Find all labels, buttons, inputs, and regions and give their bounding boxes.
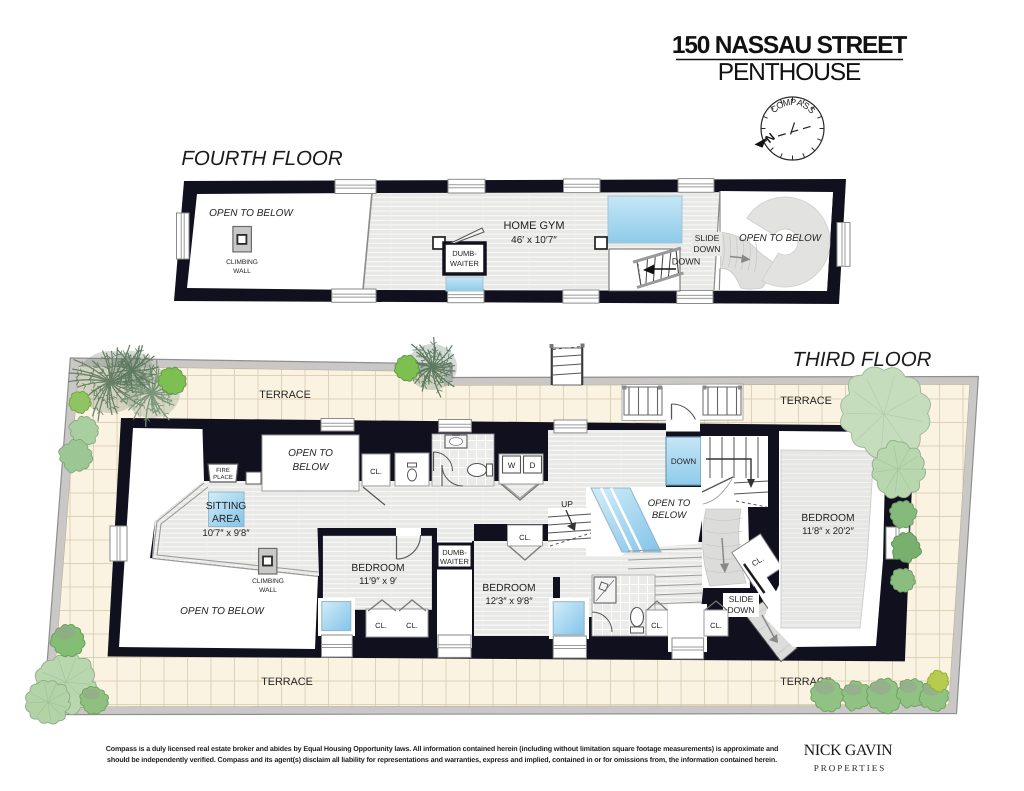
svg-text:CLIMBING: CLIMBING: [252, 578, 284, 585]
svg-text:should be independently verifi: should be independently verified. Compas…: [107, 756, 777, 764]
svg-text:BELOW: BELOW: [292, 462, 330, 473]
svg-text:DOWN: DOWN: [694, 244, 721, 254]
svg-text:BEDROOM: BEDROOM: [801, 513, 854, 524]
svg-text:DUMB-: DUMB-: [442, 548, 467, 557]
svg-text:WALL: WALL: [233, 268, 251, 275]
svg-text:OPEN TO BELOW: OPEN TO BELOW: [739, 233, 823, 244]
svg-text:HOME GYM: HOME GYM: [503, 220, 564, 232]
svg-text:OPEN TO: OPEN TO: [648, 498, 691, 509]
svg-text:FIRE: FIRE: [216, 467, 230, 474]
svg-text:TERRACE: TERRACE: [780, 395, 832, 407]
svg-text:CL.: CL.: [406, 621, 418, 630]
svg-text:CL.: CL.: [375, 621, 387, 630]
svg-text:BEDROOM: BEDROOM: [351, 563, 404, 574]
svg-text:SLIDE: SLIDE: [729, 594, 754, 604]
svg-text:DOWN: DOWN: [728, 605, 755, 615]
svg-text:CL.: CL.: [710, 621, 722, 630]
svg-text:OPEN TO BELOW: OPEN TO BELOW: [209, 208, 294, 219]
svg-text:10′7″ x 9′8″: 10′7″ x 9′8″: [202, 528, 250, 539]
svg-text:SLIDE: SLIDE: [695, 233, 720, 243]
svg-text:THIRD FLOOR: THIRD FLOOR: [793, 348, 932, 371]
svg-text:UP: UP: [561, 499, 573, 509]
svg-text:D: D: [530, 461, 536, 470]
svg-text:AREA: AREA: [212, 514, 240, 525]
svg-text:CL.: CL.: [370, 467, 382, 476]
svg-text:TERRACE: TERRACE: [261, 676, 313, 688]
svg-text:Compass is a duly licensed rea: Compass is a duly licensed real estate b…: [106, 745, 779, 753]
svg-text:NICK GAVIN: NICK GAVIN: [804, 742, 893, 759]
svg-text:46′ x 10′7″: 46′ x 10′7″: [511, 235, 557, 246]
svg-text:BELOW: BELOW: [652, 510, 687, 521]
svg-text:OPEN TO BELOW: OPEN TO BELOW: [180, 606, 265, 617]
svg-text:WALL: WALL: [259, 587, 277, 594]
svg-text:BEDROOM: BEDROOM: [482, 583, 535, 594]
svg-text:11′9″ x 9′: 11′9″ x 9′: [359, 576, 397, 587]
svg-text:PROPERTIES: PROPERTIES: [814, 763, 886, 773]
svg-text:WAITER: WAITER: [440, 557, 469, 566]
svg-text:CL.: CL.: [651, 621, 663, 630]
svg-text:TERRACE: TERRACE: [259, 389, 311, 401]
svg-text:CLIMBING: CLIMBING: [226, 259, 258, 266]
svg-text:SITTING: SITTING: [206, 501, 247, 512]
svg-text:OPEN TO: OPEN TO: [288, 448, 333, 459]
svg-text:11′8″ x 20′2″: 11′8″ x 20′2″: [802, 526, 854, 537]
svg-text:DOWN: DOWN: [672, 257, 701, 267]
svg-text:DUMB-: DUMB-: [452, 249, 477, 258]
svg-text:DOWN: DOWN: [671, 457, 697, 466]
svg-text:PENTHOUSE: PENTHOUSE: [718, 59, 861, 86]
svg-text:PLACE: PLACE: [213, 474, 233, 481]
svg-text:W: W: [508, 461, 516, 470]
svg-text:150 NASSAU STREET: 150 NASSAU STREET: [672, 32, 907, 59]
svg-text:12′3″ x 9′8″: 12′3″ x 9′8″: [485, 596, 533, 607]
svg-text:FOURTH FLOOR: FOURTH FLOOR: [181, 147, 343, 170]
svg-text:WAITER: WAITER: [450, 259, 479, 268]
svg-text:CL.: CL.: [519, 533, 531, 542]
